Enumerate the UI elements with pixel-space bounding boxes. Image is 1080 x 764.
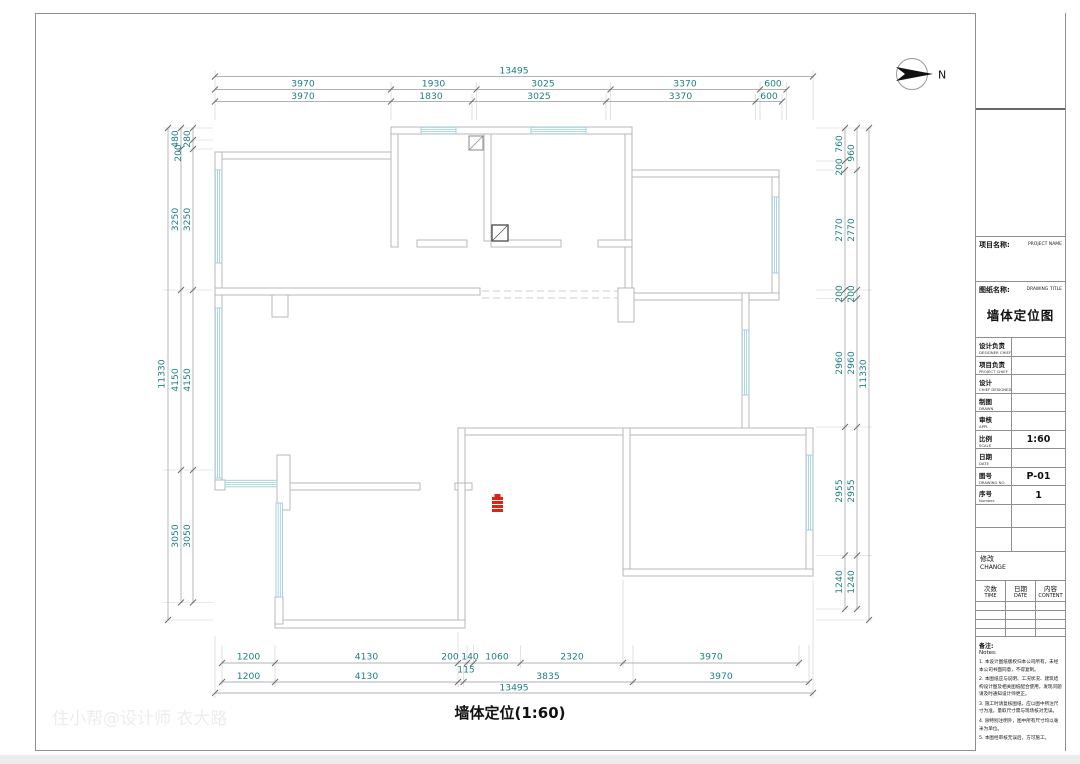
row-scale: 比例SCALE 1:60 bbox=[976, 431, 1065, 449]
drawing-title-cell: 图纸名称: DRAWING TITLE 墙体定位图 bbox=[976, 282, 1065, 338]
sheet-edge-strip bbox=[0, 755, 1080, 764]
dim-label: 200 bbox=[834, 285, 845, 303]
scale-value: 1:60 bbox=[1012, 431, 1065, 448]
dim-label: 1060 bbox=[485, 652, 509, 663]
drawing-label-cn: 图纸名称: bbox=[979, 285, 1010, 295]
window-top-b2 bbox=[531, 127, 586, 134]
row-label-en: DRAWING NO. bbox=[979, 480, 1011, 485]
dim-label: 200 bbox=[834, 158, 845, 176]
dimensions-top: 13495 3970 1930 3025 3370 600 3970 1830 … bbox=[212, 66, 816, 121]
row-label-en: DATE bbox=[979, 461, 1011, 466]
change-header: 次数 TIME 日期 DATE 内容 CONTENT bbox=[976, 581, 1065, 602]
dim-label: 3970 bbox=[699, 652, 723, 663]
change-col-time: 次数 TIME bbox=[976, 581, 1005, 601]
dim-label: 1930 bbox=[422, 79, 446, 90]
row-label-en: CHIEF DESIGNED bbox=[979, 387, 1011, 392]
dim-label: 3835 bbox=[536, 671, 560, 682]
dim-label: 3970 bbox=[709, 671, 733, 682]
flue-symbol-1 bbox=[469, 136, 483, 150]
row-label-cn: 审核 bbox=[979, 414, 1011, 424]
dim-label: 200 bbox=[846, 285, 857, 303]
flue-symbol-2 bbox=[492, 225, 508, 241]
row-value bbox=[1012, 338, 1065, 356]
window-top-b1 bbox=[421, 127, 456, 134]
notes-label-en: Notes: bbox=[979, 650, 1062, 656]
row-value bbox=[1012, 449, 1065, 467]
dim-label: 1830 bbox=[419, 91, 443, 102]
row-label-cn: 图号 bbox=[979, 470, 1011, 480]
dim-label: 2960 bbox=[834, 351, 845, 375]
row-project-chief: 项目负责PROJECT CHIEF bbox=[976, 357, 1065, 375]
dim-label: 140 bbox=[461, 652, 479, 663]
notes-label-cn: 备注: bbox=[979, 641, 1062, 650]
dim-label: 3970 bbox=[291, 91, 315, 102]
dim-label: 4150 bbox=[170, 368, 181, 392]
dashed-walls bbox=[482, 291, 618, 298]
row-value bbox=[1012, 375, 1065, 393]
floor-plan-sheet: N 13495 3970 1930 3025 3370 600 3970 183… bbox=[0, 0, 1080, 764]
window-room-c-right bbox=[772, 197, 779, 273]
notes-section: 备注: Notes: 1. 本设计图纸版权归本公司所有，未经本公司书面同意，不得… bbox=[976, 637, 1065, 749]
dim-label: 4130 bbox=[355, 671, 379, 682]
note-item: 2. 本图纸应与说明、工况状况、建筑结构设计图及相关图纸配合使用，发现问题请及时… bbox=[979, 676, 1062, 699]
row-drawn: 制图DRAWN bbox=[976, 394, 1065, 412]
row-label-cn: 设计 bbox=[979, 377, 1011, 387]
note-item: 5. 本图经审核无误后，方可施工。 bbox=[979, 735, 1062, 743]
dim-label: 2955 bbox=[846, 479, 857, 503]
dimensions-left: 11330 480 3250 4150 3050 280 200 3250 41… bbox=[157, 125, 214, 623]
row-label-en: SCALE bbox=[979, 443, 1011, 448]
note-item: 3. 施工时请复核图纸，应以图中所注尺寸为准，量取尺寸需与现场核对无误。 bbox=[979, 701, 1062, 716]
dim-label: 4150 bbox=[182, 368, 193, 392]
dim-label: 2960 bbox=[846, 351, 857, 375]
window-room-d-right bbox=[806, 455, 813, 530]
dim-label: 600 bbox=[764, 79, 782, 90]
empty-row-2 bbox=[976, 528, 1065, 552]
row-label-cn: 比例 bbox=[979, 433, 1011, 443]
dim-label: 11330 bbox=[858, 359, 869, 388]
drawing-no-value: P-01 bbox=[1012, 468, 1065, 485]
dim-label: 1200 bbox=[237, 671, 261, 682]
dim-label: 3050 bbox=[170, 524, 181, 548]
change-label-en: CHANGE bbox=[980, 564, 1061, 571]
change-label-cn: 修改 bbox=[980, 554, 1061, 564]
dim-label: 3250 bbox=[170, 208, 181, 232]
dim-label: 3025 bbox=[531, 79, 555, 90]
walls bbox=[215, 127, 813, 628]
row-label-cn: 设计负责 bbox=[979, 340, 1011, 350]
windows bbox=[215, 127, 813, 597]
project-label-cn: 项目名称: bbox=[979, 240, 1010, 250]
dim-label: 200 bbox=[441, 652, 459, 663]
dim-label: 960 bbox=[846, 144, 857, 162]
row-value bbox=[1012, 357, 1065, 374]
row-value bbox=[1012, 394, 1065, 411]
row-label-en: DESIGNER CHIEF bbox=[979, 350, 1011, 355]
row-designer-chief: 设计负责DESIGNER CHIEF bbox=[976, 338, 1065, 357]
dim-label: 3250 bbox=[182, 208, 193, 232]
dim-label: 3370 bbox=[669, 91, 693, 102]
note-item: 1. 本设计图纸版权归本公司所有，未经本公司书面同意，不得复制。 bbox=[979, 659, 1062, 674]
title-block-empty-box-2 bbox=[976, 110, 1065, 237]
window-room-e-left bbox=[276, 503, 283, 597]
north-arrow: N bbox=[896, 59, 946, 90]
dim-label: 2770 bbox=[834, 218, 845, 242]
plan-title: 墙体定位(1:60) bbox=[454, 704, 565, 722]
row-value bbox=[1012, 412, 1065, 430]
dim-label: 3370 bbox=[673, 79, 697, 90]
dimensions-right: 760 200 2770 200 2960 2955 1240 960 2770… bbox=[816, 125, 872, 623]
row-label-en: DRAWN bbox=[979, 406, 1011, 411]
change-col-content: 内容 CONTENT bbox=[1035, 581, 1065, 601]
row-designer: 设计CHIEF DESIGNED bbox=[976, 375, 1065, 394]
watermark: 住小帮@设计师 衣大路 bbox=[52, 709, 227, 729]
dim-label: 3970 bbox=[291, 79, 315, 90]
row-label-cn: 日期 bbox=[979, 451, 1011, 461]
change-empty-row bbox=[976, 629, 1065, 637]
row-label-en: PROJECT CHIEF bbox=[979, 369, 1011, 374]
dim-label: 200 bbox=[173, 144, 184, 162]
row-date: 日期DATE bbox=[976, 449, 1065, 468]
dim-label: 760 bbox=[834, 135, 845, 153]
row-serial-no: 序号Number. 1 bbox=[976, 486, 1065, 505]
drawing-title: 墙体定位图 bbox=[976, 305, 1065, 324]
window-left-upper bbox=[215, 170, 222, 263]
row-label-en: APPL bbox=[979, 424, 1011, 429]
project-label-en: PROJECT NAME bbox=[1028, 242, 1062, 250]
project-name-cell: 项目名称: PROJECT NAME bbox=[976, 237, 1065, 282]
north-arrow-needle bbox=[896, 67, 933, 81]
dim-label: 3050 bbox=[182, 524, 193, 548]
dim-label: 1200 bbox=[237, 652, 261, 663]
dim-label: 600 bbox=[760, 91, 778, 102]
dim-label: 1240 bbox=[834, 570, 845, 594]
change-empty-row bbox=[976, 611, 1065, 620]
dim-label: 3025 bbox=[527, 91, 551, 102]
row-label-en: Number. bbox=[979, 498, 1011, 503]
window-left-lower bbox=[215, 308, 222, 478]
dim-label: 4130 bbox=[355, 652, 379, 663]
title-block-empty-box-1 bbox=[976, 13, 1065, 110]
note-item: 4. 除特别注明外，图中所有尺寸均以毫米为单位。 bbox=[979, 718, 1062, 733]
row-approval: 审核APPL bbox=[976, 412, 1065, 431]
dim-label: 13495 bbox=[499, 683, 528, 694]
window-mid-right bbox=[742, 330, 749, 395]
window-balcony-horizontal bbox=[225, 480, 277, 487]
serial-no-value: 1 bbox=[1012, 486, 1065, 504]
dimensions-bottom: 1200 4130 200 140 1060 2320 3970 115 120… bbox=[212, 580, 816, 698]
change-col-date: 日期 DATE bbox=[1005, 581, 1035, 601]
row-label-cn: 序号 bbox=[979, 488, 1011, 498]
dim-label: 2320 bbox=[560, 652, 584, 663]
dim-label: 13495 bbox=[499, 66, 528, 77]
title-block: 项目名称: PROJECT NAME 图纸名称: DRAWING TITLE 墙… bbox=[975, 13, 1066, 751]
dim-label: 1240 bbox=[846, 570, 857, 594]
row-drawing-no: 图号DRAWING NO. P-01 bbox=[976, 468, 1065, 486]
change-empty-row bbox=[976, 602, 1065, 611]
row-label-cn: 制图 bbox=[979, 396, 1011, 406]
column-marker-red bbox=[492, 494, 503, 512]
row-label-cn: 项目负责 bbox=[979, 359, 1011, 369]
change-cell: 修改 CHANGE bbox=[976, 552, 1065, 581]
dim-label: 11330 bbox=[157, 359, 168, 388]
dim-label: 2955 bbox=[834, 479, 845, 503]
empty-row-1 bbox=[976, 505, 1065, 528]
drawing-label-en: DRAWING TITLE bbox=[1027, 287, 1062, 295]
north-label: N bbox=[938, 69, 946, 82]
dim-label: 2770 bbox=[846, 218, 857, 242]
dim-label: 115 bbox=[457, 665, 475, 676]
change-empty-row bbox=[976, 620, 1065, 629]
